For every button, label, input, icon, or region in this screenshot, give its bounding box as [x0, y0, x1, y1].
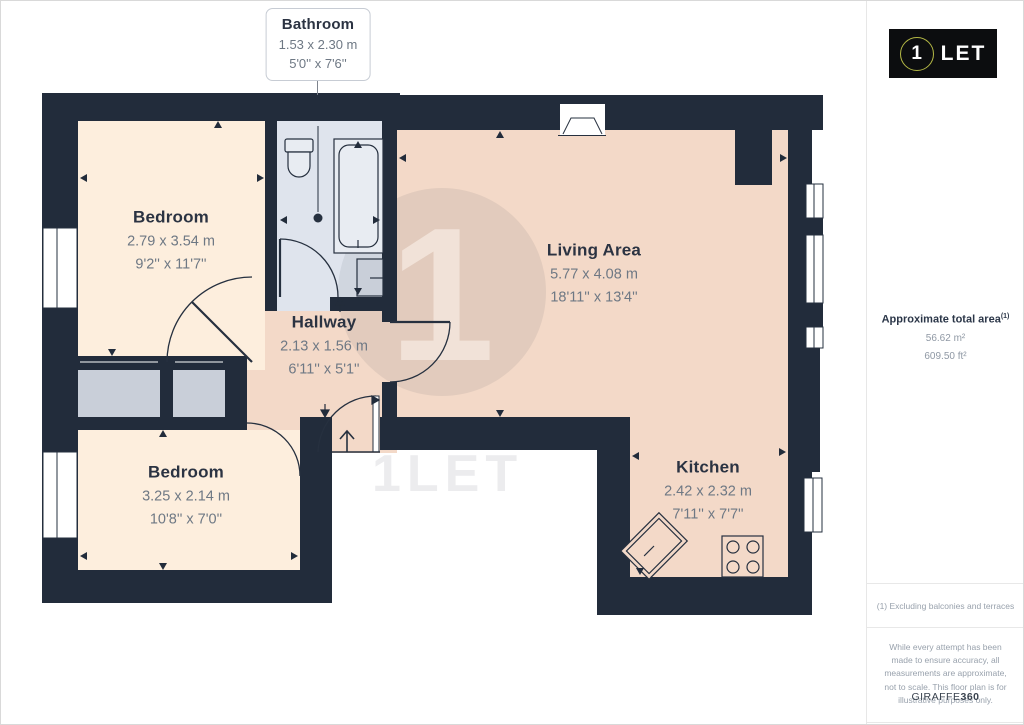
info-sidebar: 1 LET Approximate total area(1) 56.62 m²… [866, 0, 1024, 725]
living-window-2 [806, 235, 823, 303]
divider [867, 722, 1024, 723]
room-name: Hallway [280, 309, 368, 335]
total-area-footnote-ref: (1) [1001, 313, 1010, 320]
total-area-metric: 56.62 m² [867, 333, 1024, 344]
room-name: Living Area [547, 237, 641, 263]
callout-leader-line [317, 81, 318, 95]
room-dims-imperial: 18'11'' x 13'4'' [547, 286, 641, 308]
total-area-block: Approximate total area(1) 56.62 m² 609.5… [867, 313, 1024, 362]
room-label-living-area: Living Area 5.77 x 4.08 m 18'11'' x 13'4… [547, 237, 641, 308]
bedroom-1-window [43, 228, 77, 308]
room-dims-imperial: 5'0'' x 7'6'' [279, 55, 358, 74]
storage-2-floor [173, 368, 225, 419]
toilet-icon [285, 139, 313, 177]
bathroom-sink-icon [357, 259, 383, 296]
total-area-imperial: 609.50 ft² [867, 351, 1024, 362]
total-area-label-text: Approximate total area [882, 314, 1001, 326]
bathtub-icon [334, 139, 383, 253]
room-label-kitchen: Kitchen 2.42 x 2.32 m 7'11'' x 7'7'' [664, 454, 752, 525]
watermark-circle-letter: 1 [389, 189, 495, 401]
logo-number-icon: 1 [900, 37, 934, 71]
bathroom-callout: Bathroom 1.53 x 2.30 m 5'0'' x 7'6'' [266, 8, 371, 81]
room-dims-imperial: 10'8'' x 7'0'' [142, 508, 230, 530]
room-dims-metric: 1.53 x 2.30 m [279, 36, 358, 55]
living-bay-window [558, 104, 606, 136]
room-name: Bathroom [279, 14, 358, 36]
room-dims-metric: 5.77 x 4.08 m [547, 264, 641, 286]
giraffe360-brand: GIRAFFE360 [867, 691, 1024, 703]
bedroom-2-window [43, 452, 77, 538]
living-window-1 [806, 184, 823, 218]
living-window-3 [806, 327, 823, 348]
hob-icon [722, 536, 763, 577]
room-dims-imperial: 7'11'' x 7'7'' [664, 503, 752, 525]
brand-name: GIRAFFE [911, 691, 960, 703]
total-area-label: Approximate total area(1) [867, 313, 1024, 326]
room-name: Bedroom [142, 459, 230, 485]
kitchen-window [804, 478, 822, 532]
room-dims-metric: 2.13 x 1.56 m [280, 336, 368, 358]
storage-1-floor [78, 368, 160, 419]
room-name: Kitchen [664, 454, 752, 480]
divider [867, 627, 1024, 628]
room-dims-metric: 3.25 x 2.14 m [142, 486, 230, 508]
room-dims-imperial: 9'2'' x 11'7'' [127, 253, 215, 275]
room-label-bedroom-2: Bedroom 3.25 x 2.14 m 10'8'' x 7'0'' [142, 459, 230, 530]
room-dims-metric: 2.79 x 3.54 m [127, 231, 215, 253]
watermark-logo-text: 1LET [372, 445, 523, 503]
room-dims-imperial: 6'11'' x 5'1'' [280, 358, 368, 380]
agency-logo: 1 LET [889, 29, 997, 78]
room-label-bedroom-1: Bedroom 2.79 x 3.54 m 9'2'' x 11'7'' [127, 204, 215, 275]
area-footnote: (1) Excluding balconies and terraces [867, 584, 1024, 627]
room-name: Bedroom [127, 204, 215, 230]
room-label-hallway: Hallway 2.13 x 1.56 m 6'11'' x 5'1'' [280, 309, 368, 380]
room-dims-metric: 2.42 x 2.32 m [664, 481, 752, 503]
brand-suffix: 360 [960, 691, 979, 703]
logo-text: LET [941, 42, 987, 66]
